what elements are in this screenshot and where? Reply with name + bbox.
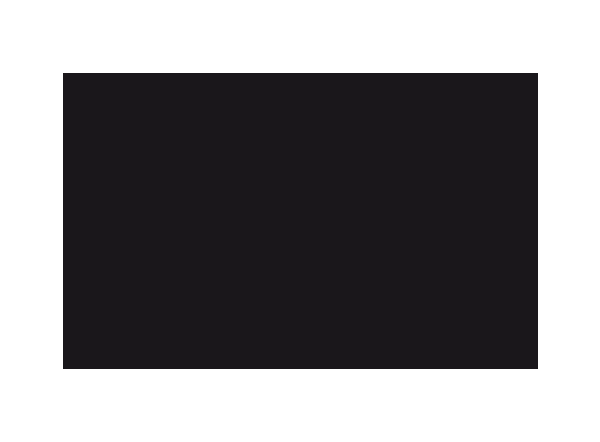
screenshot-root: [0, 0, 600, 442]
blank-display-area: [63, 73, 538, 369]
